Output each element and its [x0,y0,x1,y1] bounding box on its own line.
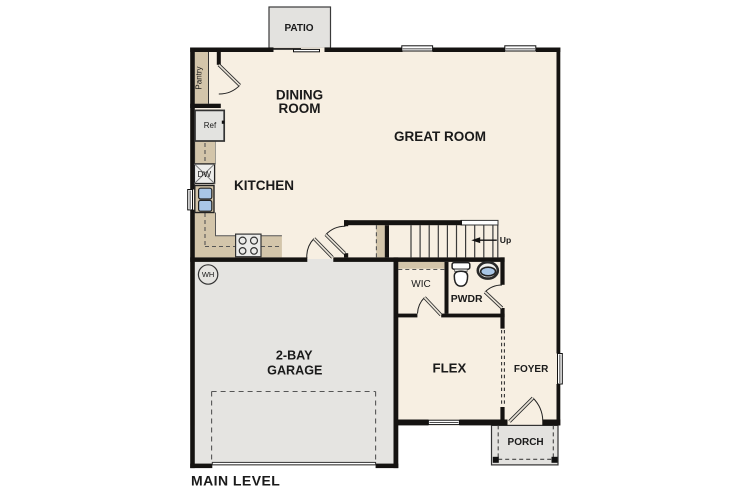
svg-text:GREAT ROOM: GREAT ROOM [394,129,486,144]
svg-text:Ref: Ref [204,121,217,130]
svg-text:WH: WH [202,270,215,279]
svg-text:2-BAY: 2-BAY [276,348,313,362]
svg-text:PORCH: PORCH [508,437,544,448]
svg-text:PWDR: PWDR [451,294,483,305]
svg-text:WIC: WIC [411,279,430,290]
svg-text:GARAGE: GARAGE [267,364,322,378]
svg-text:FLEX: FLEX [433,360,467,375]
svg-text:FOYER: FOYER [514,364,549,375]
svg-text:Pantry: Pantry [195,66,204,89]
svg-text:KITCHEN: KITCHEN [234,178,294,193]
svg-text:Up: Up [500,235,511,245]
svg-text:DW: DW [197,170,211,179]
svg-text:MAIN LEVEL: MAIN LEVEL [191,473,280,489]
svg-text:ROOM: ROOM [279,101,321,116]
svg-text:PATIO: PATIO [284,23,313,34]
